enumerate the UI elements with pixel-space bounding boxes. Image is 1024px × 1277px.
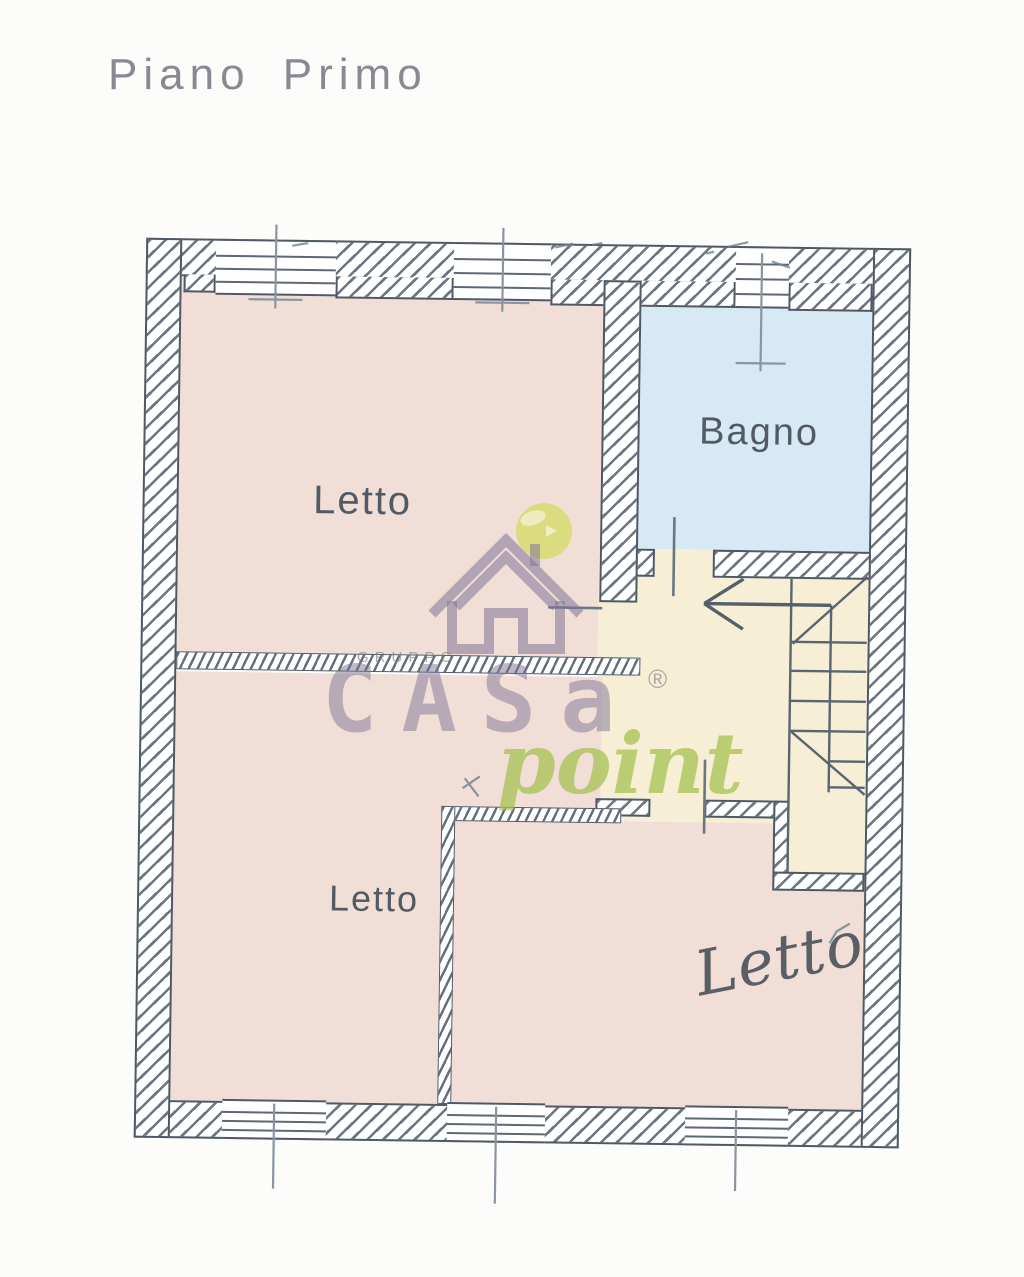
floor-plan: Letto Bagno Letto Letto bbox=[0, 0, 1024, 1277]
door-leaves bbox=[545, 515, 708, 833]
stair-direction-arrow bbox=[704, 579, 832, 631]
plan-linework bbox=[0, 0, 1024, 1277]
window-centerlines bbox=[236, 224, 788, 1207]
room-label-letto-top: Letto bbox=[282, 478, 443, 525]
room-label-letto-bottom-left: Letto bbox=[299, 877, 450, 921]
pencil-scribbles bbox=[283, 236, 860, 944]
stairs bbox=[787, 576, 867, 873]
room-label-bagno: Bagno bbox=[691, 410, 827, 455]
scanned-floor-plan-page: Piano Primo bbox=[0, 0, 1024, 1277]
